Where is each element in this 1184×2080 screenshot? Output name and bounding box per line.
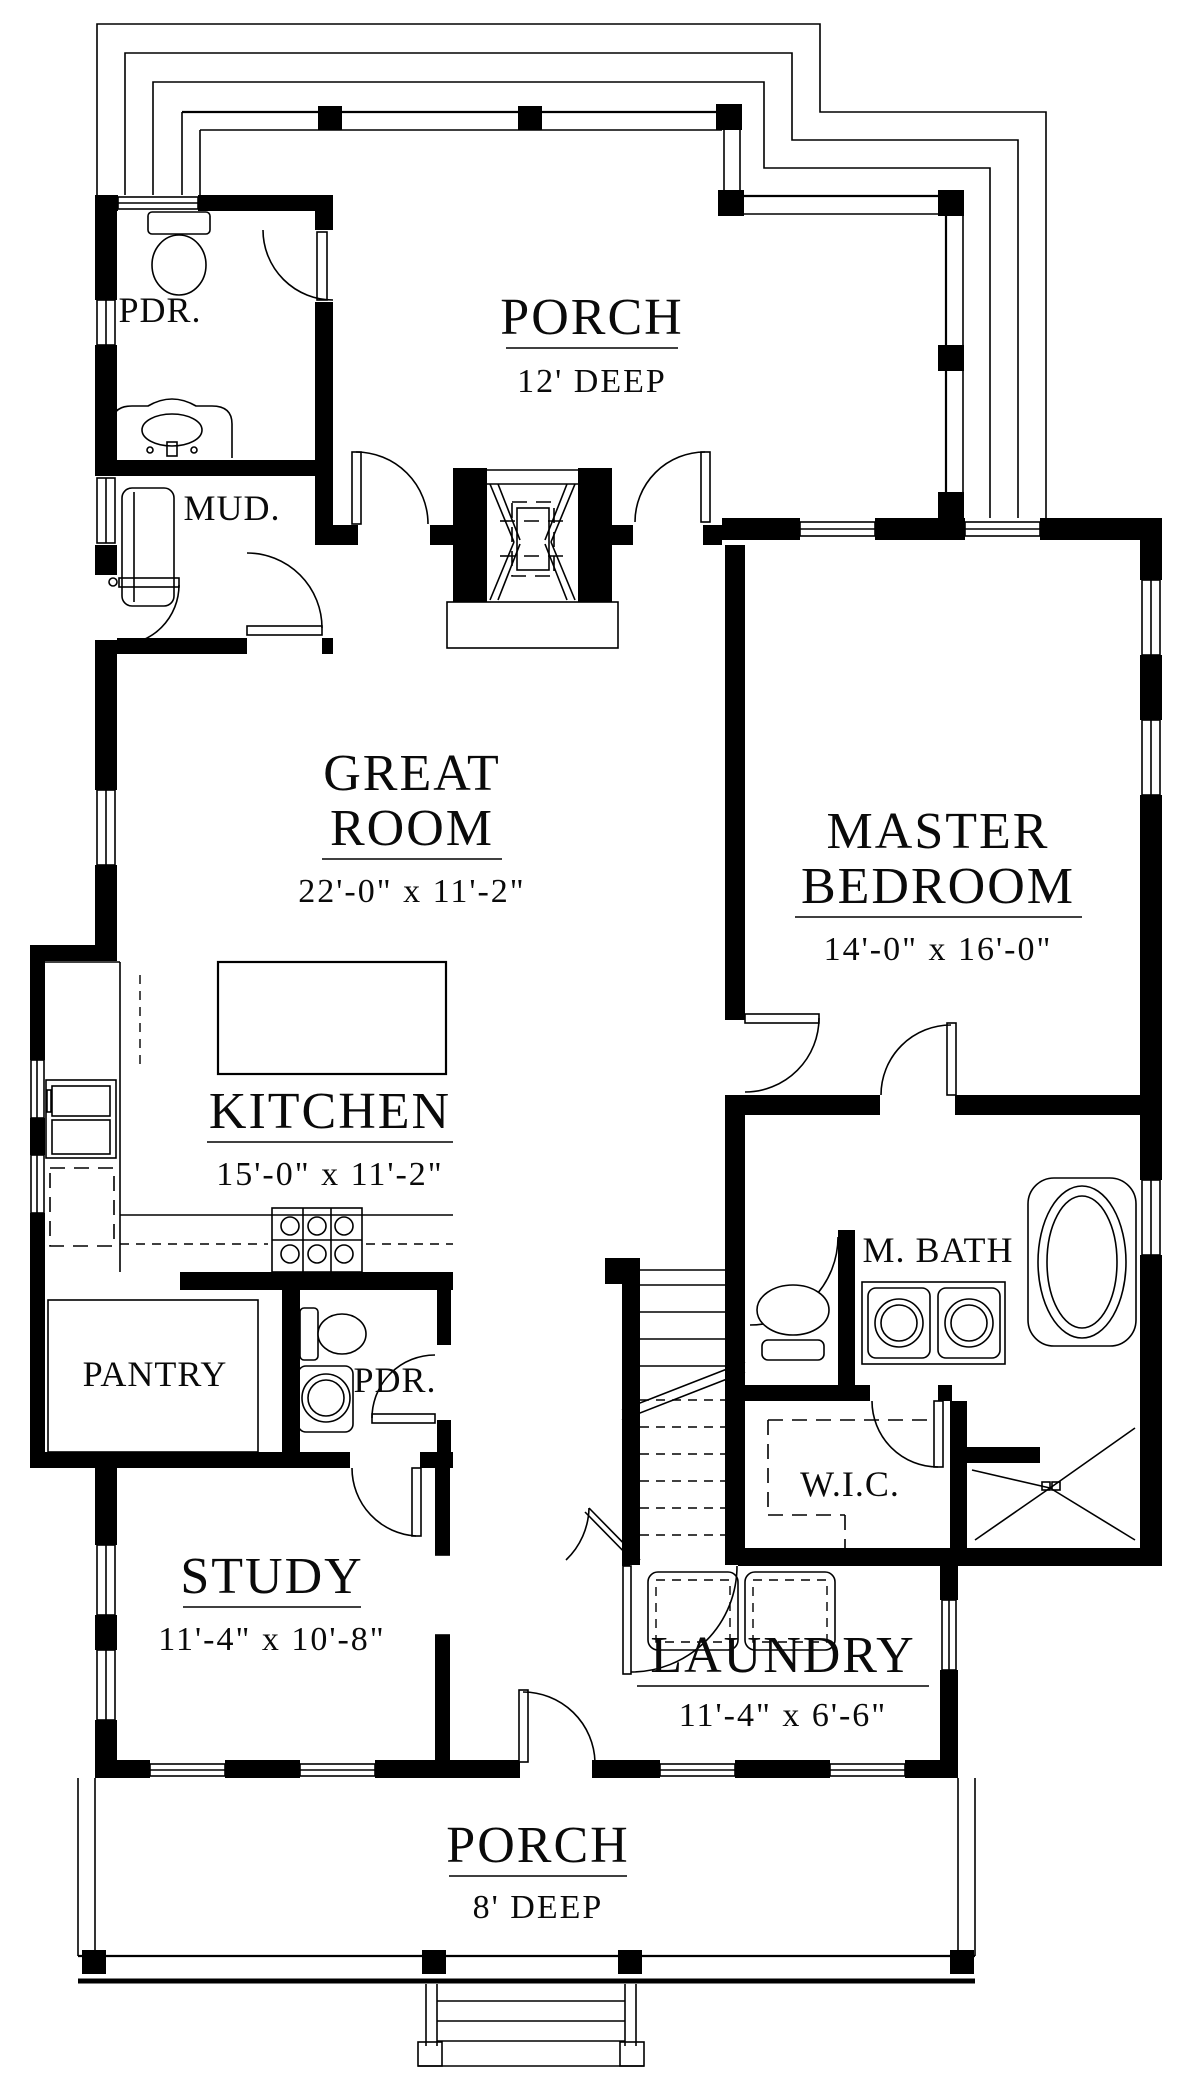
window	[1142, 1180, 1160, 1255]
kitchen-dims: 15'-0" x 11'-2"	[216, 1156, 443, 1193]
doors	[109, 230, 956, 1762]
window	[300, 1764, 375, 1776]
door-wic	[872, 1401, 943, 1467]
window	[965, 522, 1040, 536]
master-bedroom-dims: 14'-0" x 16'-0"	[824, 931, 1053, 968]
master-bath-label: M. BATH	[862, 1230, 1013, 1270]
label-kitchen: KITCHEN 15'-0" x 11'-2"	[207, 1083, 453, 1193]
porch-top-dims: 12' DEEP	[517, 363, 667, 400]
master-tub	[1028, 1178, 1136, 1346]
roof-outline-lines	[97, 24, 1046, 518]
door-mud-exterior	[109, 578, 179, 645]
label-master-bedroom: MASTER BEDROOM 14'-0" x 16'-0"	[795, 803, 1082, 968]
kitchen-island	[218, 962, 446, 1074]
window	[97, 1650, 115, 1720]
pdr-top-toilet	[148, 212, 210, 295]
study-dims: 11'-4" x 10'-8"	[158, 1621, 385, 1658]
window	[97, 1545, 115, 1615]
window	[97, 300, 115, 345]
pdr-top-label: PDR.	[118, 290, 201, 330]
door-master-bath	[881, 1023, 956, 1095]
front-steps	[418, 1984, 644, 2066]
porch-top-name: PORCH	[500, 289, 683, 346]
window	[830, 1764, 905, 1776]
mud-label: MUD.	[183, 488, 280, 528]
window	[800, 522, 875, 536]
label-porch-bottom: PORCH 8' DEEP	[446, 1817, 629, 1926]
kitchen-name: KITCHEN	[209, 1083, 451, 1140]
master-bedroom-name-2: BEDROOM	[801, 858, 1075, 915]
range-cooktop	[272, 1208, 362, 1272]
great-room-dims: 22'-0" x 11'-2"	[298, 873, 525, 910]
refrigerator	[46, 1080, 116, 1158]
window	[97, 478, 115, 543]
porch-bottom-name: PORCH	[446, 1817, 629, 1874]
label-porch-top: PORCH 12' DEEP	[500, 289, 683, 400]
floor-plan-drawing: PORCH 12' DEEP PDR. MUD. GREAT ROOM 22'-…	[0, 0, 1184, 2080]
door-entry-left	[352, 452, 428, 524]
study-name: STUDY	[180, 1548, 363, 1605]
window	[1142, 720, 1160, 795]
porch-bottom-dims: 8' DEEP	[473, 1889, 604, 1926]
floor-plan: PORCH 12' DEEP PDR. MUD. GREAT ROOM 22'-…	[0, 0, 1184, 2080]
window	[31, 1060, 44, 1118]
window	[31, 1155, 44, 1213]
window	[942, 1600, 956, 1670]
great-room-name-1: GREAT	[323, 745, 501, 802]
label-laundry: LAUNDRY 11'-4" x 6'-6"	[637, 1627, 929, 1734]
laundry-dims: 11'-4" x 6'-6"	[679, 1697, 887, 1734]
exterior-walls	[30, 195, 1162, 1778]
window	[1142, 580, 1160, 655]
wic-label: W.I.C.	[800, 1464, 900, 1504]
pdr-lower-sink	[298, 1366, 353, 1432]
laundry-name: LAUNDRY	[650, 1627, 915, 1684]
window	[660, 1764, 735, 1776]
door-master-bedroom	[745, 1014, 819, 1092]
door-rear-porch	[519, 1690, 595, 1762]
door-study	[352, 1468, 421, 1536]
pdr-lower-label: PDR.	[353, 1360, 436, 1400]
pdr-top-sink	[112, 399, 232, 458]
mud-bench	[122, 488, 174, 606]
window	[97, 790, 115, 865]
pdr-lower-toilet	[300, 1308, 366, 1360]
great-room-name-2: ROOM	[330, 800, 494, 857]
window	[118, 197, 198, 209]
pantry-label: PANTRY	[83, 1354, 228, 1394]
door-pdr-top	[263, 230, 333, 300]
window	[150, 1764, 225, 1776]
label-great-room: GREAT ROOM 22'-0" x 11'-2"	[298, 745, 525, 910]
master-bedroom-name-1: MASTER	[827, 803, 1050, 860]
label-study: STUDY 11'-4" x 10'-8"	[158, 1548, 385, 1658]
door-entry-right	[635, 452, 710, 522]
bottom-porch	[78, 1778, 975, 1981]
master-toilet	[757, 1285, 829, 1360]
master-vanity	[862, 1282, 1005, 1364]
master-shower	[952, 1422, 1135, 1540]
door-mud-hall	[247, 553, 322, 635]
